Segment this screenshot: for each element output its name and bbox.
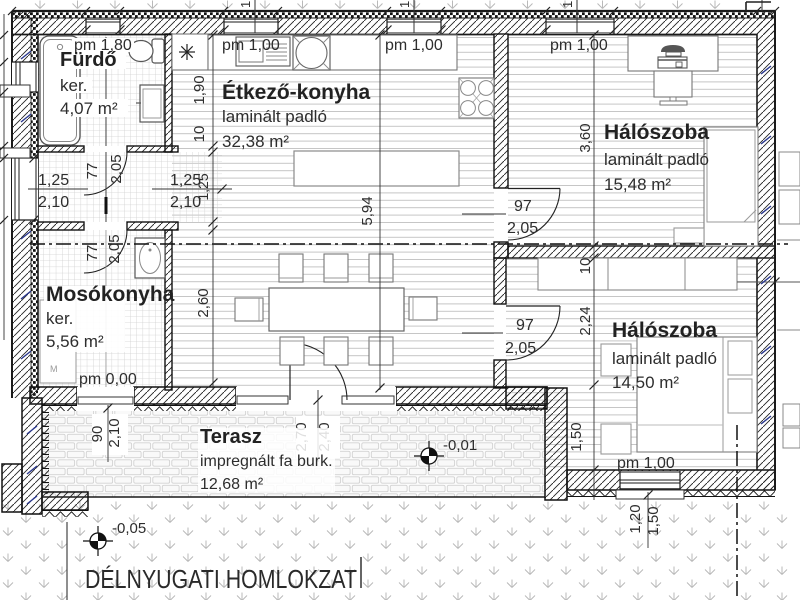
svg-text:14,50 m²: 14,50 m² — [612, 373, 679, 392]
svg-text:1,90: 1,90 — [191, 75, 208, 104]
svg-text:ker.: ker. — [46, 309, 73, 328]
svg-text:10: 10 — [577, 258, 594, 275]
svg-text:pm 1,00: pm 1,00 — [617, 455, 675, 472]
svg-text:Hálószoba: Hálószoba — [604, 121, 709, 144]
svg-text:1,25: 1,25 — [170, 172, 201, 189]
svg-text:5,56 m²: 5,56 m² — [46, 332, 104, 351]
svg-text:90: 90 — [89, 426, 106, 443]
svg-text:pm 0,00: pm 0,00 — [79, 371, 137, 388]
svg-text:pm 1,00: pm 1,00 — [222, 37, 280, 54]
svg-text:2,05: 2,05 — [108, 154, 125, 183]
svg-text:2,05: 2,05 — [106, 234, 123, 263]
svg-text:1,: 1, — [397, 0, 412, 8]
svg-text:77: 77 — [84, 163, 101, 180]
svg-text:pm 1,00: pm 1,00 — [550, 37, 608, 54]
svg-text:1,: 1, — [560, 0, 575, 8]
svg-text:M: M — [50, 364, 58, 374]
svg-text:2,10: 2,10 — [106, 418, 123, 447]
svg-text:97: 97 — [516, 317, 534, 334]
svg-text:Terasz: Terasz — [200, 426, 262, 448]
svg-text:2,05: 2,05 — [505, 340, 536, 357]
svg-text:Mosókonyha: Mosókonyha — [46, 283, 175, 306]
svg-text:DÉLNYUGATI HOMLOKZAT: DÉLNYUGATI HOMLOKZAT — [85, 564, 357, 594]
svg-text:-0,05: -0,05 — [112, 520, 146, 537]
svg-text:2,10: 2,10 — [170, 194, 201, 211]
svg-text:impregnált fa burk.: impregnált fa burk. — [200, 453, 333, 470]
svg-text:1,: 1, — [238, 0, 253, 8]
svg-text:pm 1,00: pm 1,00 — [385, 37, 443, 54]
svg-text:1,50: 1,50 — [568, 422, 585, 451]
svg-text:10: 10 — [191, 126, 208, 143]
svg-text:2,24: 2,24 — [577, 306, 594, 335]
svg-text:12,68 m²: 12,68 m² — [200, 476, 264, 493]
svg-text:2,05: 2,05 — [507, 220, 538, 237]
svg-text:ker.: ker. — [60, 76, 87, 95]
svg-text:3,60: 3,60 — [577, 123, 594, 152]
svg-text:32,38 m²: 32,38 m² — [222, 132, 289, 151]
svg-text:1,20: 1,20 — [627, 504, 644, 533]
svg-text:15,48 m²: 15,48 m² — [604, 175, 671, 194]
svg-text:4,07 m²: 4,07 m² — [60, 99, 118, 118]
svg-text:77: 77 — [84, 245, 101, 262]
svg-text:97: 97 — [514, 198, 532, 215]
svg-text:2,10: 2,10 — [38, 194, 69, 211]
svg-text:laminált padló: laminált padló — [604, 150, 709, 169]
svg-text:laminált padló: laminált padló — [612, 349, 717, 368]
svg-text:Fürdő: Fürdő — [60, 49, 117, 71]
svg-text:Hálószoba: Hálószoba — [612, 319, 717, 342]
svg-text:5,94: 5,94 — [359, 196, 376, 225]
svg-text:1,50: 1,50 — [645, 506, 662, 535]
svg-text:Étkező-konyha: Étkező-konyha — [222, 81, 371, 104]
svg-text:-0,01: -0,01 — [443, 437, 477, 454]
svg-text:2,60: 2,60 — [195, 288, 212, 317]
svg-text:laminált padló: laminált padló — [222, 107, 327, 126]
svg-text:1,25: 1,25 — [38, 172, 69, 189]
